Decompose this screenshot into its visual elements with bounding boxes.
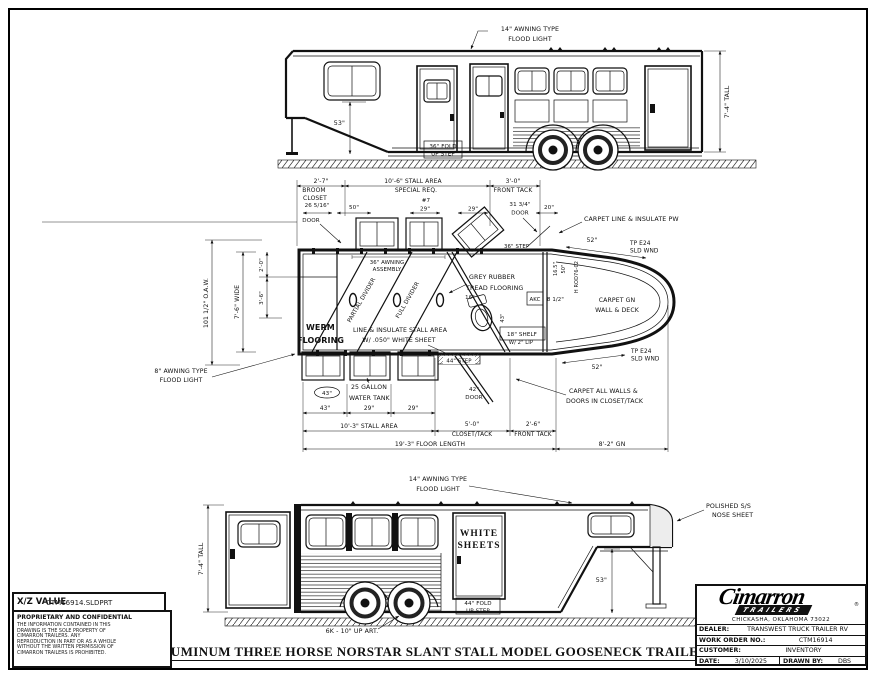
gn-tag-16-5: 16.5" — [553, 262, 559, 276]
work-order-value: CTM16914 — [768, 636, 863, 646]
closet-tack-label: CLOSET/TACK — [452, 432, 492, 438]
customer-row: CUSTOMER: INVENTORY — [697, 645, 865, 656]
top-floodlight-label-1: 14" AWNING TYPE — [501, 26, 559, 33]
water-tank-2: WATER TANK — [349, 395, 391, 402]
sld-wnd-top-2: SLD WND — [630, 249, 659, 255]
customer-value: INVENTORY — [744, 646, 863, 656]
carpet-all-1: CARPET ALL WALLS & — [569, 388, 638, 395]
door-42-label: DOOR — [465, 395, 482, 401]
carpet-pw-label: CARPET LINE & INSULATE PW — [584, 216, 679, 223]
dim-50: 50" — [349, 205, 359, 211]
dim-20: 20" — [544, 205, 554, 211]
trailer-drawing: 36" FOLD UP STEP — [0, 0, 875, 676]
closet-tack-dim: 5'-0" — [465, 422, 479, 428]
broom-label-2: CLOSET — [303, 195, 327, 202]
dim-3-6: 3'-6" — [259, 291, 265, 305]
sld-wnd-bot-1: TP E24 — [630, 349, 652, 355]
awning-assembly-1: 36" AWNING — [370, 260, 405, 266]
window-tag-43: 43" — [322, 391, 332, 397]
awning-assembly-2: ASSEMBLY — [373, 267, 402, 273]
date-value: 3/10/2025 — [723, 657, 779, 667]
drawn-by-value: DBS — [826, 657, 863, 667]
top-gn-height-dim: 53" — [334, 120, 345, 127]
ground-hatch-2 — [225, 618, 703, 626]
floor-length-dim: 19'-3" FLOOR LENGTH — [395, 441, 465, 448]
carpet-gn-2: WALL & DECK — [595, 307, 640, 314]
grey-rubber-2: TREAD FLOORING — [465, 285, 523, 292]
nose-label-2: NOSE SHEET — [712, 512, 753, 519]
work-order-row: WORK ORDER NO.: CTM16914 — [697, 635, 865, 646]
akc-dim: 8 1/2" — [547, 297, 564, 303]
bottom-step-label-2: UP STEP — [466, 609, 490, 615]
bottom-step-label-1: 44" FOLD — [464, 601, 491, 607]
registered-mark-icon: ® — [854, 602, 859, 608]
white-sheets-1: WHITE — [460, 529, 498, 539]
gn-part-number: H ROD76-02 — [574, 261, 580, 293]
front-tack-top-dim: 3'-0" — [506, 178, 521, 185]
flood-8-label-2: FLOOD LIGHT — [160, 377, 203, 384]
file-name: CTM16914.SLDPRT — [46, 599, 112, 607]
stall-windows-top-view — [515, 68, 627, 122]
dim-29-d: 29" — [408, 406, 419, 412]
werm-label-2: FLOORING — [297, 336, 344, 345]
drawn-by-label: DRAWN BY: — [783, 657, 823, 667]
door-42-dim: 42" — [469, 387, 479, 393]
front-tack-top-label: FRONT TACK — [494, 187, 534, 194]
oaw-dim: 101 1/2" O.A.W. — [203, 278, 210, 328]
bottom-gn-height-dim: 53" — [596, 577, 607, 584]
white-sheets-2: SHEETS — [458, 541, 501, 551]
sld-wnd-bot-2: SLD WND — [631, 357, 660, 363]
cimarron-logo: Cimarron TRAILERS ® — [697, 586, 865, 616]
bottom-height-dim: 7'-4" TALL — [198, 542, 205, 575]
water-tank-1: 25 GALLON — [351, 384, 387, 391]
stall-windows-bottom-view — [306, 513, 438, 551]
dim-29-b: 29" — [468, 207, 478, 213]
bottom-elevation-view: WHITE SHEETS 44" FOLD UP STEP — [198, 476, 753, 635]
nose-label-1: POLISHED S/S — [706, 503, 751, 510]
title-block: Cimarron TRAILERS ® CHICKASHA, OKLAHOMA … — [695, 584, 867, 666]
bottom-floodlight-label-2: FLOOD LIGHT — [416, 486, 460, 493]
grey-rubber-1: GREY RUBBER — [469, 274, 516, 281]
akc-label: AKC — [530, 297, 541, 303]
axle-label: 6K - 10" UP ART. — [326, 628, 379, 635]
brand-address: CHICKASHA, OKLAHOMA 73022 — [697, 616, 865, 624]
date-row: DATE: 3/10/2025 DRAWN BY: DBS — [697, 656, 865, 667]
front-tack-bot-dim: 2'-6" — [526, 422, 540, 428]
dim-43-vertical: 43" — [500, 313, 506, 322]
proprietary-title: PROPRIETARY AND CONFIDENTIAL — [17, 614, 167, 621]
customer-label: CUSTOMER: — [699, 646, 741, 656]
work-order-label: WORK ORDER NO.: — [699, 636, 765, 646]
gn-tag-50: 50" — [561, 265, 567, 274]
dim-43-b: 43" — [320, 406, 331, 412]
stall-area-top-dim: 10'-6" STALL AREA — [384, 178, 442, 185]
door-26-label: DOOR — [302, 218, 319, 224]
step-36-label: 36" STEP — [504, 244, 530, 250]
proprietary-body: THE INFORMATION CONTAINED IN THIS DRAWIN… — [17, 623, 117, 657]
gn-length-dim: 8'-2" GN — [599, 441, 626, 448]
dim-16: 16" — [465, 295, 475, 301]
sld-wnd-top-1: TP E24 — [629, 241, 651, 247]
carpet-gn-1: CARPET GN — [599, 297, 636, 304]
brand-subtitle: TRAILERS — [735, 605, 813, 615]
werm-label-1: WERM — [306, 323, 335, 332]
flood-8-label-1: 8" AWNING TYPE — [154, 368, 207, 375]
broom-label-1: BROOM — [302, 187, 325, 194]
ground-hatch — [278, 160, 756, 168]
date-label: DATE: — [699, 657, 720, 667]
stall-area-bot-dim: 10'-3" STALL AREA — [340, 423, 398, 430]
door-26-dim: 26 5/16" — [305, 203, 330, 209]
top-step-label-1: 36" FOLD — [429, 144, 456, 150]
dealer-row: DEALER: TRANSWEST TRUCK TRAILER RV — [697, 624, 865, 635]
plan-bottom-windows — [302, 352, 438, 380]
dim-29-c: 29" — [364, 406, 375, 412]
dim-29-a: 29" — [420, 207, 430, 213]
top-floodlight-label-2: FLOOD LIGHT — [508, 36, 552, 43]
top-height-dim: 7'-4" TALL — [724, 85, 731, 118]
door-31-label: DOOR — [511, 211, 528, 217]
carpet-all-2: DOORS IN CLOSET/TACK — [566, 398, 644, 405]
insulate-note-2: W/ .050" WHITE SHEET — [362, 337, 435, 344]
drawing-title: ALUMINUM THREE HORSE NORSTAR SLANT STALL… — [150, 641, 710, 660]
wide-dim: 7'-6" WIDE — [234, 285, 241, 319]
proprietary-box: PROPRIETARY AND CONFIDENTIAL THE INFORMA… — [12, 610, 172, 668]
shelf-label-1: 18" SHELF — [507, 332, 537, 338]
insulate-note-1: LINE & INSULATE STALL AREA — [353, 327, 448, 334]
floor-plan-view: PARTIAL DIVIDER FULL DIVIDER — [42, 178, 679, 452]
tag-7: #7 — [422, 198, 431, 204]
file-box: X/Z VALUE CTM16914.SLDPRT — [12, 592, 166, 612]
shelf-label-2: W/ 2" LIP — [509, 340, 533, 346]
dealer-label: DEALER: — [699, 625, 729, 635]
special-req-label: SPECIAL REQ. — [395, 187, 437, 194]
top-elevation-view: 36" FOLD UP STEP — [278, 26, 756, 170]
dim-52-bot: 52" — [592, 364, 603, 371]
dealer-value: TRANSWEST TRUCK TRAILER RV — [732, 625, 863, 635]
top-step-label-2: UP STEP — [431, 152, 455, 158]
broom-dim: 2'-7" — [314, 178, 329, 185]
plan-top-windows — [356, 218, 442, 250]
dim-52-top: 52" — [587, 237, 598, 244]
drawing-sheet: 36" FOLD UP STEP — [0, 0, 875, 676]
slat-siding — [513, 126, 640, 147]
dim-2-0: 2'-0" — [259, 258, 265, 272]
drawing-title-text: ALUMINUM THREE HORSE NORSTAR SLANT STALL… — [152, 644, 708, 661]
bottom-floodlight-label-1: 14" AWNING TYPE — [409, 476, 467, 483]
front-tack-bot-label: FRONT TACK — [514, 432, 552, 438]
door-31-dim: 31 3/4" — [509, 202, 530, 208]
